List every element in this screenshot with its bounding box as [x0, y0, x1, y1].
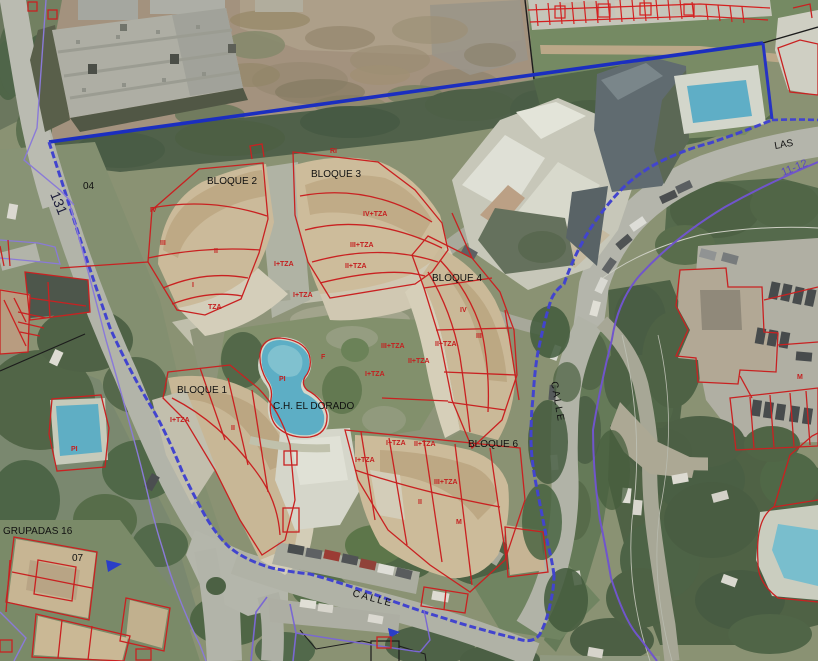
svg-text:I+TZA: I+TZA — [365, 371, 385, 378]
svg-text:PI: PI — [279, 376, 286, 383]
svg-text:I+TZA: I+TZA — [355, 457, 375, 464]
svg-text:II: II — [214, 248, 218, 255]
svg-text:III+TZA: III+TZA — [434, 479, 458, 486]
svg-text:I+TZA: I+TZA — [386, 440, 406, 447]
svg-text:BLOQUE 4: BLOQUE 4 — [432, 273, 482, 284]
svg-text:I: I — [192, 282, 194, 289]
svg-text:M: M — [456, 519, 462, 526]
svg-text:F: F — [321, 354, 326, 361]
svg-text:IV+TZA: IV+TZA — [363, 211, 387, 218]
svg-text:TZA: TZA — [208, 304, 222, 311]
svg-text:IV: IV — [460, 307, 467, 314]
svg-text:II: II — [418, 499, 422, 506]
svg-text:07: 07 — [72, 553, 84, 564]
svg-text:II+TZA: II+TZA — [345, 263, 367, 270]
svg-text:II+TZA: II+TZA — [435, 341, 457, 348]
svg-text:I+TZA: I+TZA — [170, 417, 190, 424]
svg-text:I+TZA: I+TZA — [274, 261, 294, 268]
svg-text:II+TZA: II+TZA — [414, 441, 436, 448]
svg-text:BLOQUE 3: BLOQUE 3 — [311, 169, 361, 180]
svg-text:PI: PI — [71, 446, 78, 453]
svg-text:BLOQUE 6: BLOQUE 6 — [468, 439, 518, 450]
svg-text:BLOQUE 2: BLOQUE 2 — [207, 176, 257, 187]
svg-text:III: III — [476, 333, 482, 340]
svg-text:GRUPADAS 16: GRUPADAS 16 — [3, 526, 73, 537]
svg-text:IV: IV — [150, 207, 157, 214]
svg-text:III: III — [160, 240, 166, 247]
svg-text:III+TZA: III+TZA — [350, 242, 374, 249]
svg-text:M: M — [797, 374, 803, 381]
svg-text:II+TZA: II+TZA — [408, 358, 430, 365]
svg-text:RI: RI — [330, 148, 337, 155]
svg-text:II: II — [231, 425, 235, 432]
svg-text:04: 04 — [83, 181, 95, 192]
svg-text:III+TZA: III+TZA — [381, 343, 405, 350]
svg-text:BLOQUE 1: BLOQUE 1 — [177, 385, 227, 396]
svg-text:C.H. EL DORADO: C.H. EL DORADO — [273, 401, 355, 412]
svg-text:I+TZA: I+TZA — [293, 292, 313, 299]
